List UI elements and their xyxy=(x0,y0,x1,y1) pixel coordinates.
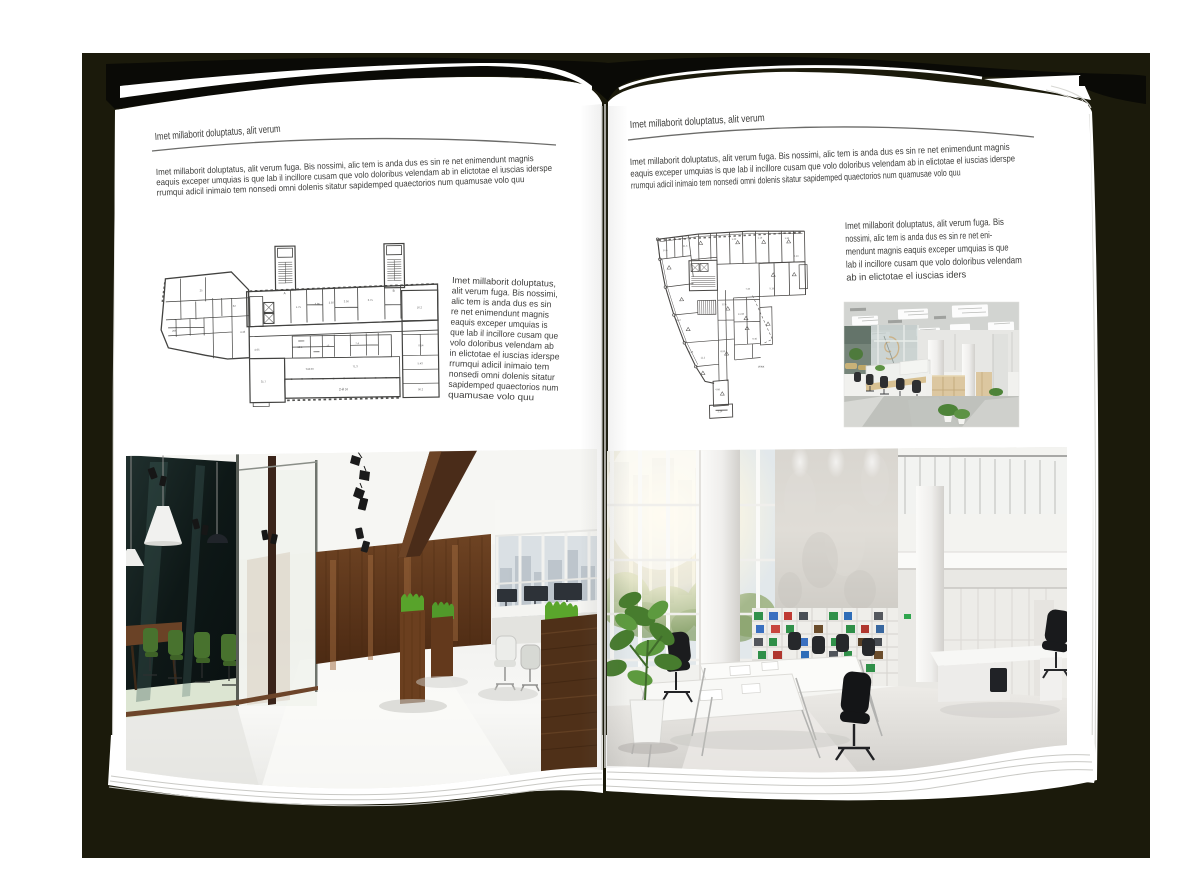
svg-text:206: 206 xyxy=(172,329,177,333)
svg-text:542.00: 542.00 xyxy=(306,367,315,371)
svg-text:2.20: 2.20 xyxy=(718,410,723,413)
svg-text:12.6: 12.6 xyxy=(722,303,727,306)
svg-text:A: A xyxy=(284,291,286,295)
svg-text:этаж: этаж xyxy=(758,364,765,368)
svg-text:5.43: 5.43 xyxy=(418,361,424,365)
svg-text:31.7: 31.7 xyxy=(261,379,267,383)
svg-text:56.2: 56.2 xyxy=(676,319,681,322)
svg-text:1.20: 1.20 xyxy=(732,238,737,241)
svg-text:0.54: 0.54 xyxy=(418,343,424,347)
svg-text:9.46: 9.46 xyxy=(752,338,757,341)
svg-text:2.40: 2.40 xyxy=(794,255,799,258)
svg-text:16.2: 16.2 xyxy=(417,305,423,309)
svg-text:71.3: 71.3 xyxy=(353,364,359,368)
svg-text:90.2: 90.2 xyxy=(418,387,424,391)
svg-text:3.75: 3.75 xyxy=(368,298,374,302)
svg-text:2.30: 2.30 xyxy=(329,301,335,305)
svg-text:4.68: 4.68 xyxy=(715,388,720,391)
svg-text:11.2: 11.2 xyxy=(701,356,706,359)
svg-text:5.16: 5.16 xyxy=(769,287,774,290)
svg-text:4.43: 4.43 xyxy=(240,330,246,334)
svg-text:6.15: 6.15 xyxy=(689,351,694,354)
svg-text:21.3: 21.3 xyxy=(683,245,688,248)
svg-text:12.1: 12.1 xyxy=(297,345,303,349)
svg-text:7.4: 7.4 xyxy=(355,341,359,345)
svg-text:1.75: 1.75 xyxy=(296,305,302,309)
svg-text:7.34: 7.34 xyxy=(745,288,750,291)
svg-text:1.32: 1.32 xyxy=(785,237,790,240)
svg-text:B: B xyxy=(393,289,395,293)
svg-text:2-й эт: 2-й эт xyxy=(339,387,349,391)
svg-text:8.90: 8.90 xyxy=(721,350,726,353)
svg-text:4.65: 4.65 xyxy=(254,348,260,352)
svg-text:3.00: 3.00 xyxy=(344,299,350,303)
svg-text:14.08: 14.08 xyxy=(738,313,745,316)
svg-text:14.6: 14.6 xyxy=(663,249,668,252)
svg-text:2.85: 2.85 xyxy=(315,302,321,306)
svg-text:1.16: 1.16 xyxy=(758,236,763,239)
